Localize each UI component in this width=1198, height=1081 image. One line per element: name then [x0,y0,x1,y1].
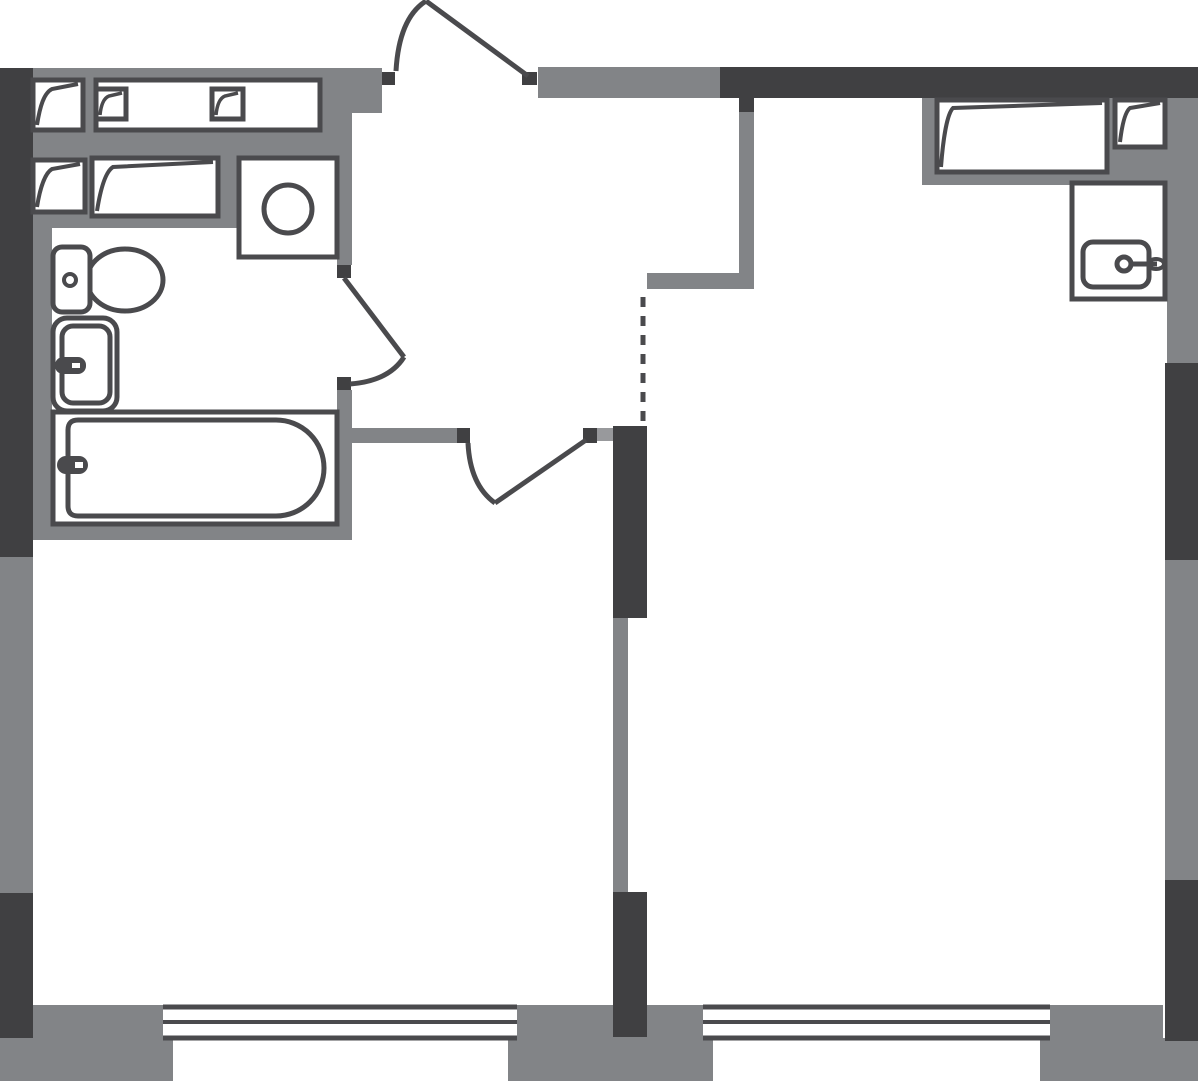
pier-bottom-left-upper [33,1005,163,1038]
entry-door-leaf [426,1,528,76]
bathtub-faucet [57,456,88,474]
basin-faucet [55,357,86,374]
wall-partition-upper [613,426,647,618]
wall-partition-lower [613,892,647,1037]
toilet-flush-button [64,274,76,286]
room-door-jamb-left [457,428,470,443]
wall-hall-right-cap [739,98,754,112]
pier-bottom-center-upper [517,1005,703,1038]
wall-partition-mid [613,618,628,892]
wall-top-right [720,67,1198,98]
bathtub-faucet-slit [75,462,83,468]
wall-top-center-band [538,67,720,98]
wall-right-mid [1165,560,1198,880]
room-door-block [597,428,613,441]
counter-top [96,80,320,130]
wall-right-upper [1167,98,1198,363]
wall-left-mid [0,557,33,893]
floor-plan [0,0,1198,1081]
pier-bottom-right [1040,1038,1198,1081]
kitchen-faucet-knob [1117,257,1131,271]
entry-door-arc [396,1,426,71]
wall-bath-left [33,228,52,523]
basin-faucet-slit [72,363,80,368]
bath-door-jamb-top [337,265,351,278]
floor-plan-svg [0,0,1198,1081]
wall-right-uppermid [1165,363,1198,560]
bath-door-leaf [344,278,404,357]
bathtub-outer [53,412,337,524]
bath-door-arc [350,357,404,384]
toilet-bowl [87,249,163,311]
room-door-arc [468,443,495,503]
wall-hall-right [739,112,754,289]
room-door-leaf [495,440,586,503]
pier-bottom-right-upper [1050,1005,1163,1038]
wall-entry-jamb-stub [352,99,382,113]
bath-door-jamb-bottom [337,377,351,390]
wall-leftroom-top [352,428,457,443]
pier-bottom-left [0,1038,173,1081]
wall-nook-top [647,273,754,289]
wall-left-lower [0,893,33,1038]
wall-left-upper [0,68,33,557]
pier-bottom-center [508,1037,713,1081]
entry-door-jamb-left [382,72,395,85]
wall-right-lower [1165,880,1198,1041]
wardrobe [937,100,1107,172]
washing-machine [239,158,337,257]
